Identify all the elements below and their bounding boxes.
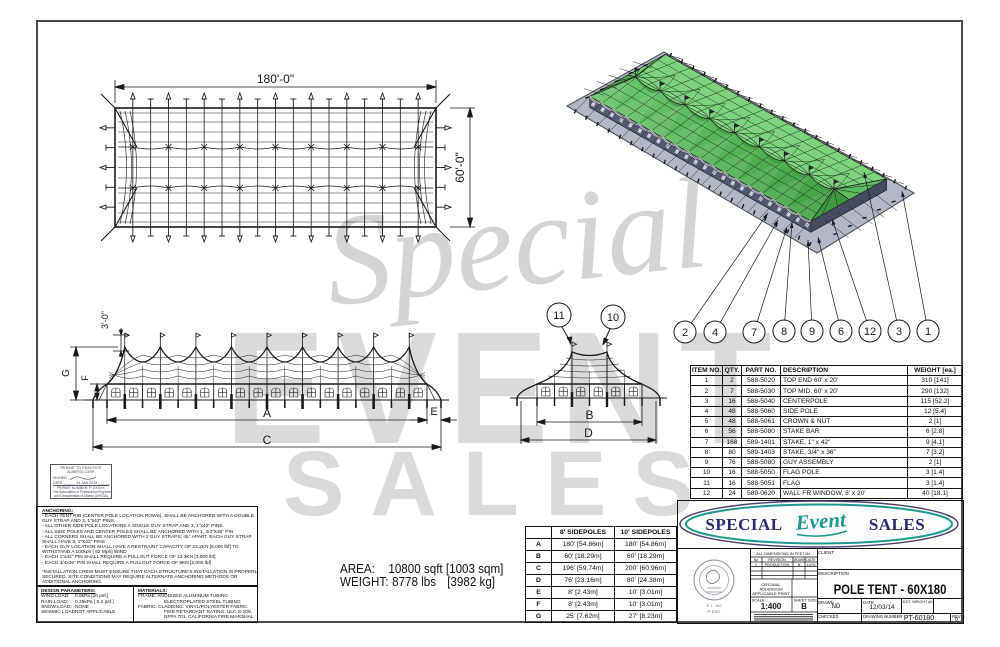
svg-text:N: N (798, 563, 801, 567)
svg-text:1:400: 1:400 (761, 602, 782, 611)
svg-text:6: 6 (838, 326, 844, 338)
svg-text:F: F (80, 375, 90, 381)
svg-text:180'-0": 180'-0" (257, 72, 294, 86)
svg-text:B: B (801, 602, 807, 611)
svg-text:REVISION: REVISION (768, 558, 786, 562)
svg-text:3'-0": 3'-0" (100, 311, 110, 329)
svg-text:Event: Event (794, 507, 848, 535)
svg-text:60'-0": 60'-0" (453, 152, 467, 183)
svg-text:SPECIAL: SPECIAL (705, 515, 782, 534)
svg-text:12: 12 (864, 326, 876, 338)
svg-text:7: 7 (751, 327, 757, 339)
svg-text:S. L. NO: S. L. NO (706, 603, 721, 608)
svg-text:B: B (585, 408, 593, 422)
svg-text:8: 8 (781, 326, 787, 338)
svg-text:DRAWN: DRAWN (792, 558, 806, 562)
svg-text:SALES: SALES (869, 515, 925, 534)
svg-text:9: 9 (809, 326, 815, 338)
svg-text:P. ENG: P. ENG (707, 609, 720, 614)
svg-text:12/03: 12/03 (807, 563, 816, 567)
svg-text:DATE: DATE (806, 558, 816, 562)
svg-text:PRODUCTION: PRODUCTION (765, 563, 790, 567)
svg-text:1: 1 (925, 326, 931, 338)
svg-text:C: C (263, 433, 272, 447)
svg-text:10: 10 (607, 312, 619, 324)
svg-text:ALL DIMENSIONS IN FEET/IN: ALL DIMENSIONS IN FEET/IN (756, 551, 810, 556)
svg-text:No: No (754, 558, 759, 562)
svg-text:3: 3 (896, 326, 902, 338)
svg-text:1: 1 (755, 563, 757, 567)
svg-text:E: E (430, 406, 437, 418)
svg-text:A: A (263, 406, 271, 420)
svg-text:11: 11 (553, 310, 564, 322)
svg-text:G: G (61, 369, 72, 377)
svg-text:APPLICABLE PRINT: APPLICABLE PRINT (752, 591, 790, 596)
svg-text:D: D (584, 426, 593, 440)
svg-text:4: 4 (712, 327, 718, 339)
